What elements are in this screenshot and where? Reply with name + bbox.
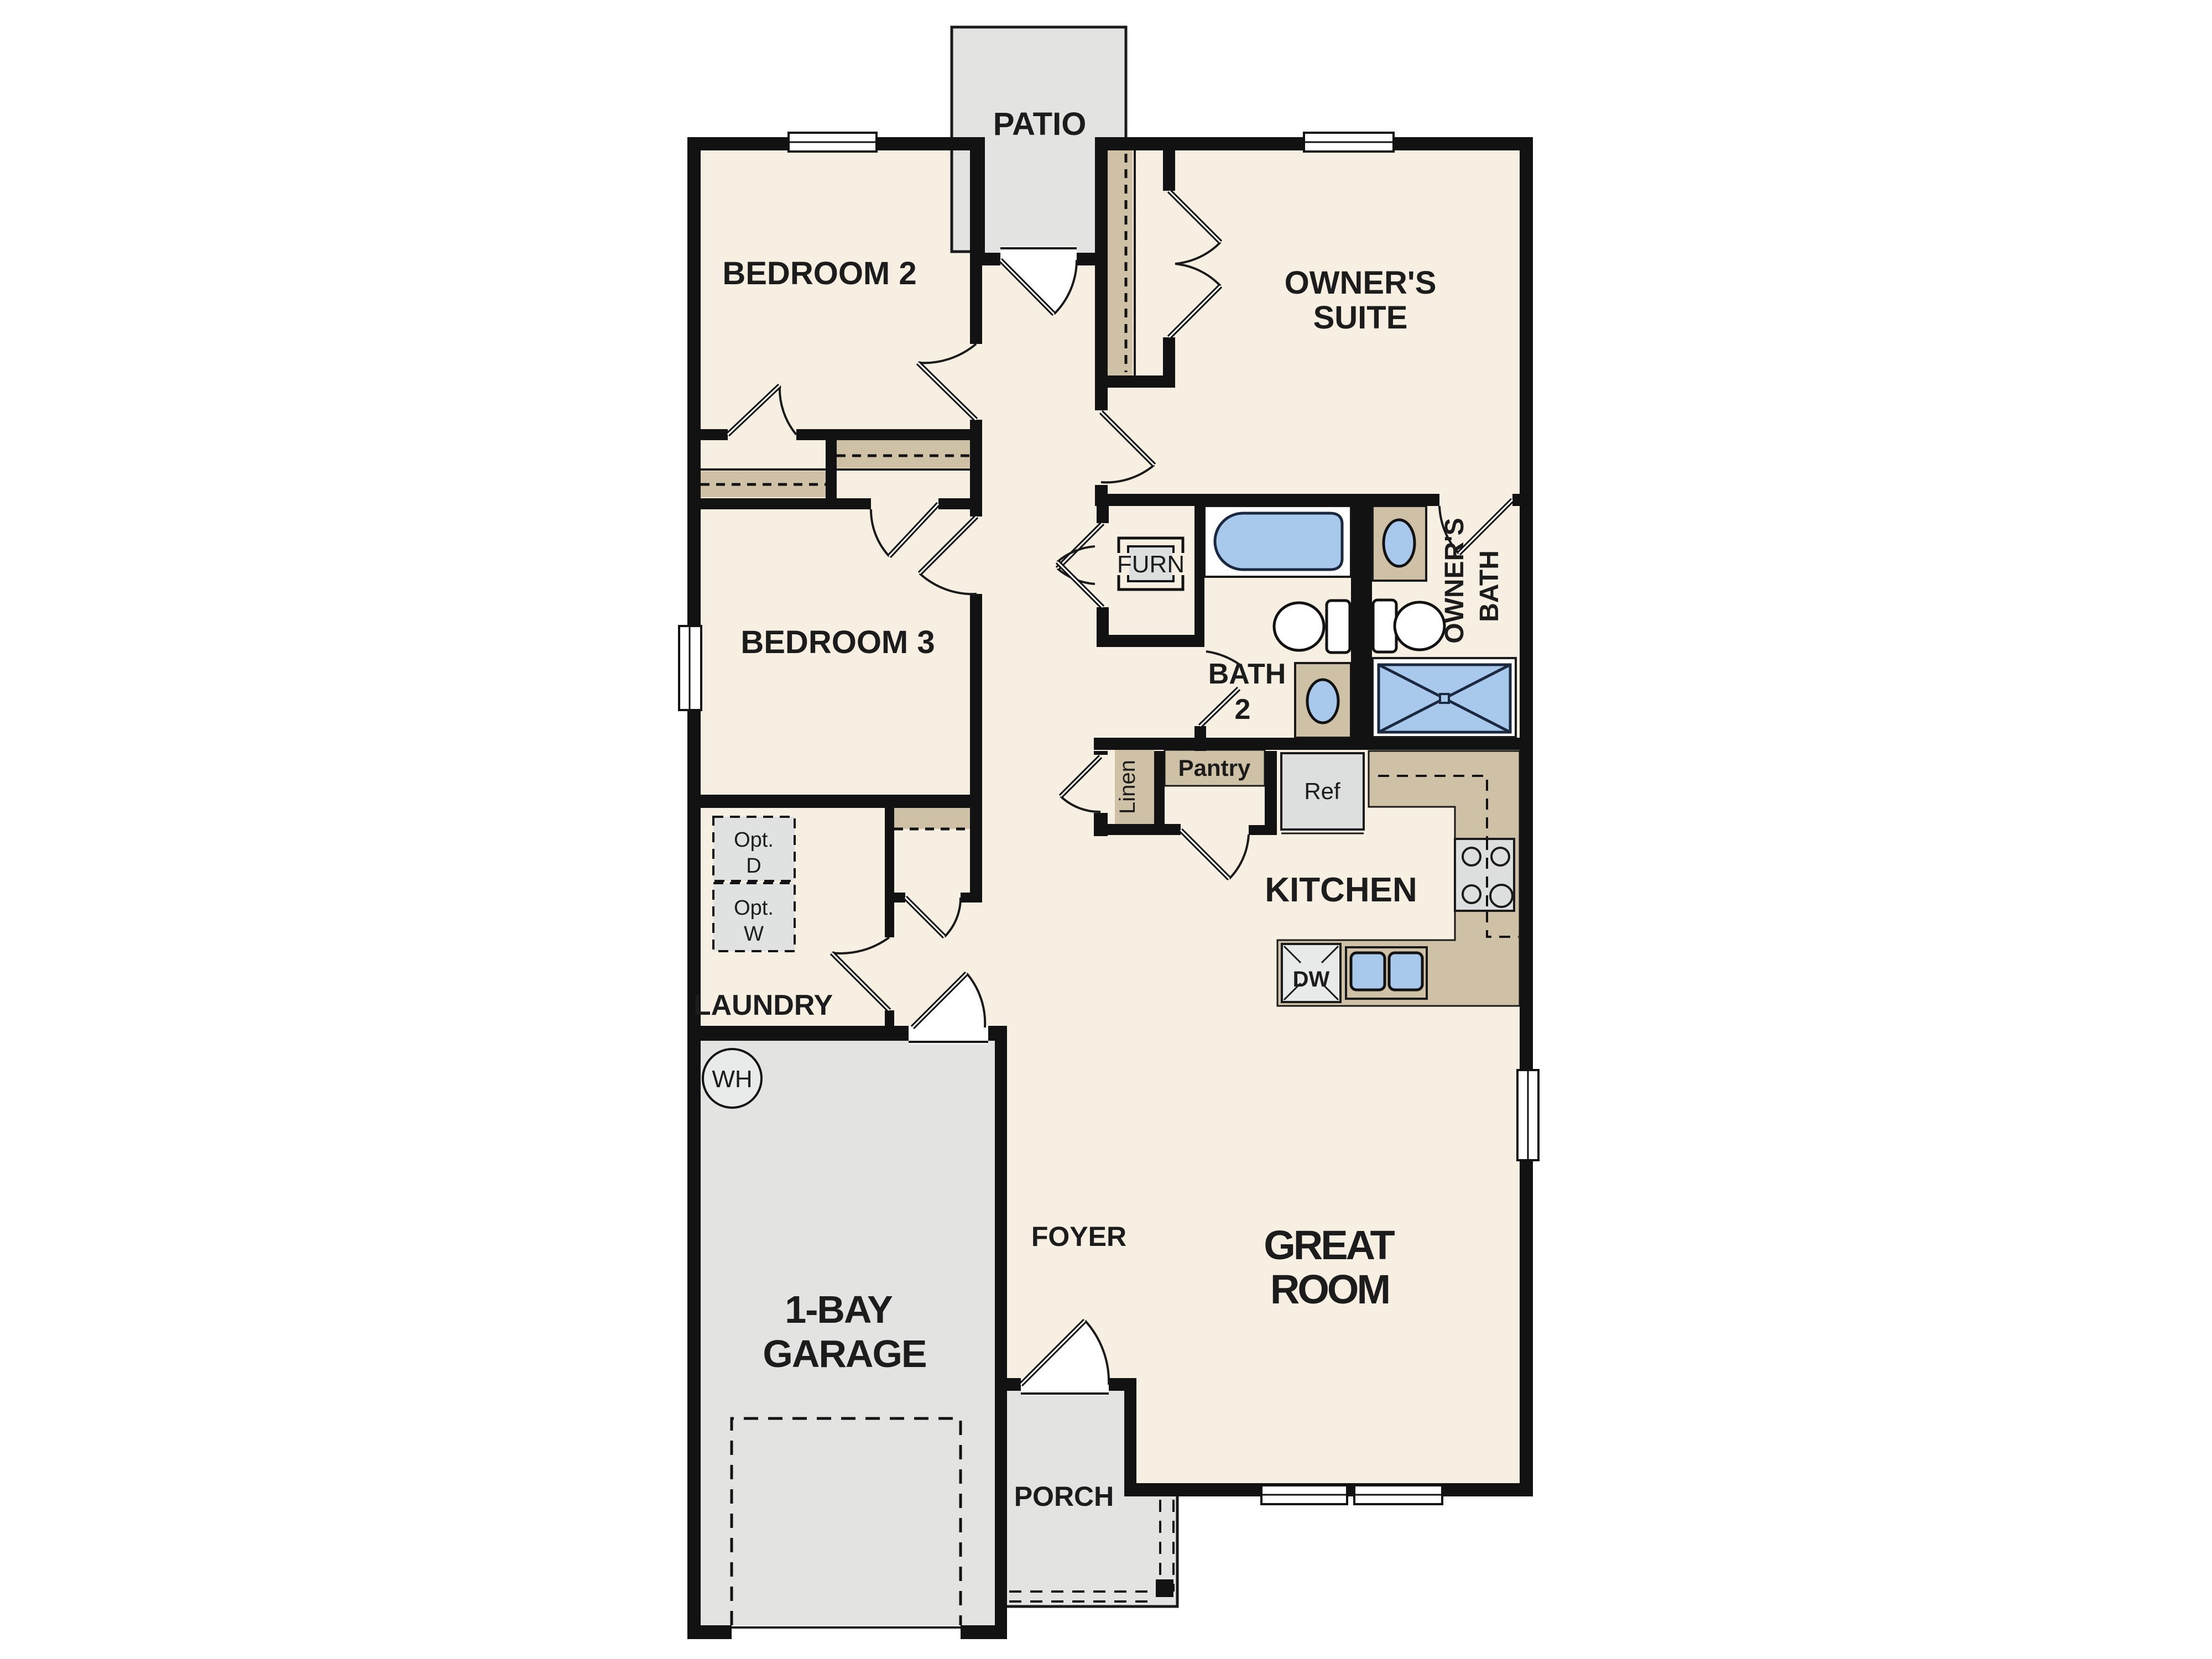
svg-text:ROOM: ROOM [1270, 1266, 1389, 1312]
svg-text:PORCH: PORCH [1014, 1481, 1114, 1512]
svg-text:D: D [746, 854, 761, 878]
svg-text:WH: WH [712, 1066, 752, 1093]
svg-text:Pantry: Pantry [1178, 755, 1251, 781]
svg-text:GREAT: GREAT [1264, 1222, 1395, 1268]
svg-text:PATIO: PATIO [993, 106, 1087, 142]
svg-text:Opt.: Opt. [734, 896, 774, 920]
svg-text:BATH: BATH [1208, 658, 1286, 690]
svg-text:Ref: Ref [1304, 778, 1340, 804]
svg-text:FOYER: FOYER [1031, 1221, 1126, 1252]
svg-text:BEDROOM 3: BEDROOM 3 [740, 624, 935, 660]
svg-text:2: 2 [1235, 693, 1251, 726]
svg-text:W: W [744, 922, 764, 946]
svg-text:SUITE: SUITE [1313, 300, 1408, 336]
svg-text:Linen: Linen [1115, 760, 1140, 814]
svg-text:BATH: BATH [1475, 550, 1504, 622]
svg-text:BEDROOM 2: BEDROOM 2 [722, 255, 916, 291]
svg-text:FURN: FURN [1117, 551, 1185, 578]
svg-text:LAUNDRY: LAUNDRY [693, 989, 833, 1021]
svg-text:1-BAY: 1-BAY [785, 1288, 893, 1331]
svg-text:OWNER'S: OWNER'S [1440, 518, 1469, 643]
svg-text:OWNER'S: OWNER'S [1285, 265, 1437, 301]
svg-text:DW: DW [1293, 967, 1330, 992]
svg-text:Opt.: Opt. [734, 828, 774, 852]
svg-text:GARAGE: GARAGE [763, 1332, 926, 1375]
svg-text:KITCHEN: KITCHEN [1265, 871, 1417, 909]
